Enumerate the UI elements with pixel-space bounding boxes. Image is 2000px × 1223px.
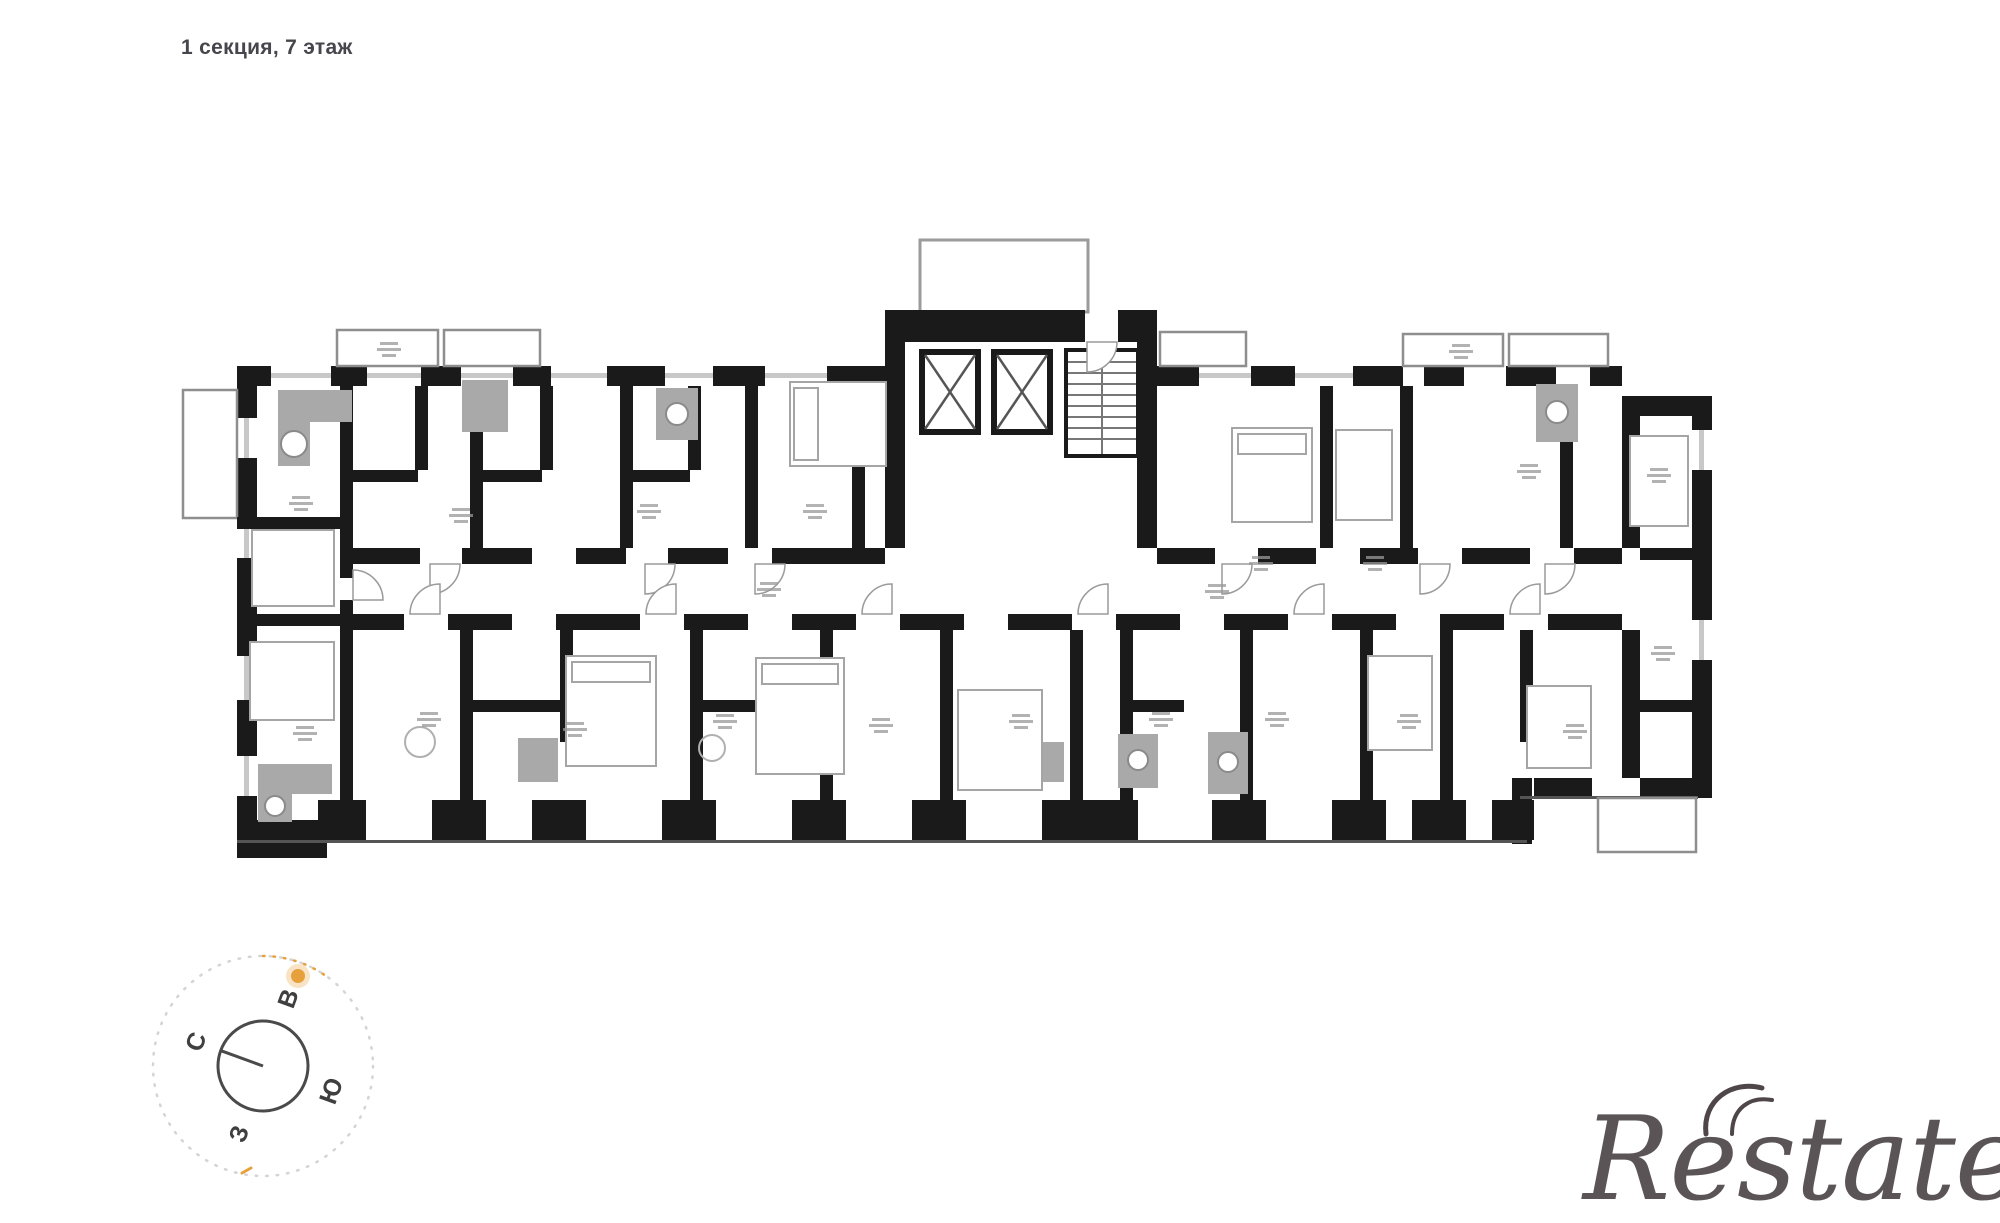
core-vestibule [920, 240, 1088, 312]
page: 1 секция, 7 этаж [0, 0, 2000, 1223]
watermark: Restate [1583, 1092, 2000, 1223]
compass-north-label: С [180, 1028, 212, 1055]
compass-dial: С В Ю З [156, 961, 373, 1171]
compass-south-label: Ю [314, 1074, 349, 1108]
watermark-text: Restate [1583, 1092, 2000, 1223]
compass-west-label: З [223, 1122, 255, 1146]
sun-dot [291, 969, 305, 983]
elevator-shaft-right [994, 352, 1050, 432]
compass-bottom-tick [242, 1168, 251, 1173]
compass-east-label: В [272, 985, 304, 1012]
compass-rose: С В Ю З [150, 952, 376, 1184]
elevator-core [885, 240, 1157, 548]
elevator-shaft-left [922, 352, 978, 432]
